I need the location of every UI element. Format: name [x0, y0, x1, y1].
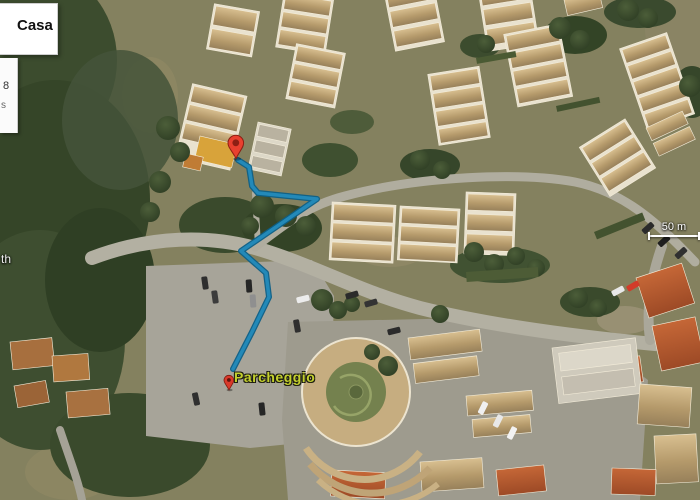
parcheggio-marker-pin[interactable] [224, 375, 234, 391]
legend-panel[interactable]: Casa [0, 3, 58, 55]
route-path[interactable] [233, 160, 317, 369]
legend-fragment-text-1: 8 [3, 80, 9, 92]
cutoff-street-label: th [1, 252, 11, 266]
route-path-casing [233, 160, 317, 369]
legend-panel-fragment[interactable]: 8 s [0, 58, 18, 133]
scale-line [648, 235, 700, 237]
scale-label: 50 m [648, 221, 700, 233]
satellite-map-view[interactable]: Casa 8 s th Parcheggio 50 m [0, 0, 700, 500]
legend-title: Casa [0, 4, 57, 34]
legend-fragment-text-2: s [1, 100, 6, 111]
route-overlay [0, 0, 700, 500]
casa-marker-pin[interactable] [228, 135, 244, 160]
scale-bar: 50 m [648, 221, 700, 237]
parcheggio-label[interactable]: Parcheggio [234, 369, 315, 385]
